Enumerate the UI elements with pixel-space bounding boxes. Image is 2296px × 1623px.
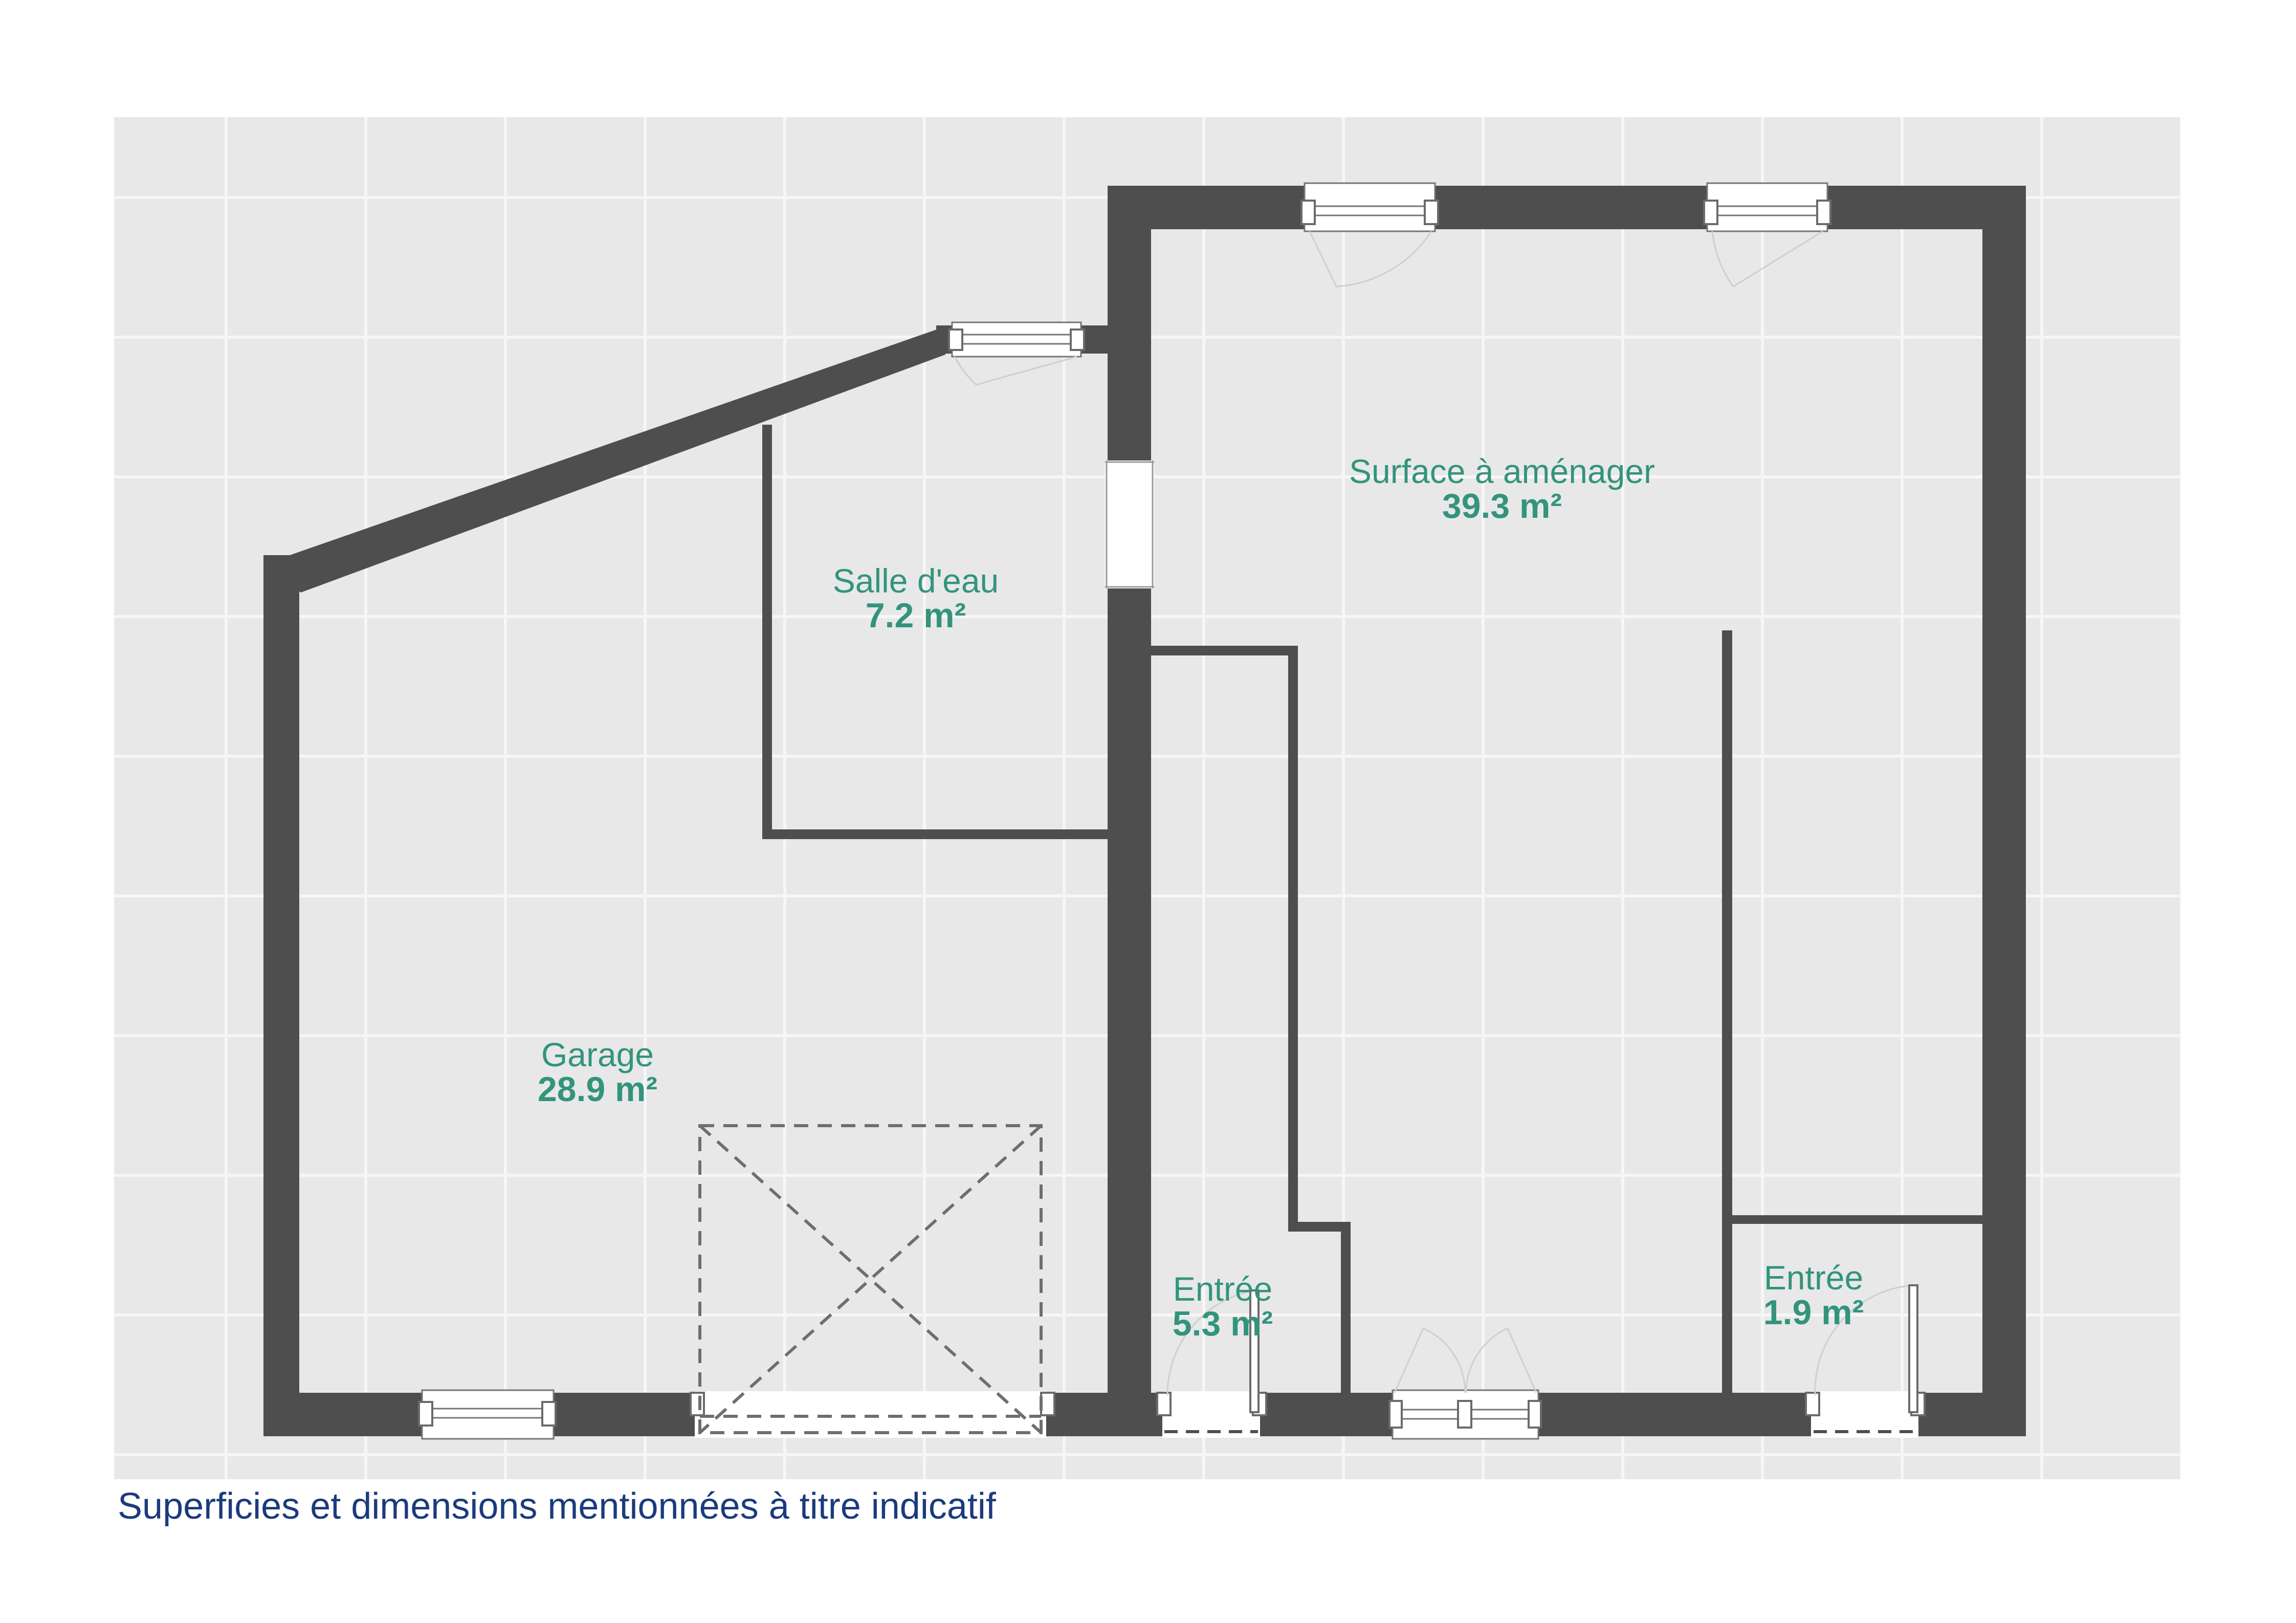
window-cap-icon — [1529, 1401, 1541, 1428]
room-label-garage-name: Garage — [541, 1036, 654, 1073]
window-cap-icon — [1071, 330, 1084, 350]
room-label-garage-area: 28.9 m² — [538, 1070, 657, 1109]
wall-entree1-top — [1151, 646, 1298, 655]
plan-caption: Superficies et dimensions mentionnées à … — [118, 1486, 997, 1527]
door-jamb-icon — [1041, 1393, 1054, 1415]
window-garage — [419, 1390, 556, 1439]
room-label-entree2-name: Entrée — [1764, 1259, 1863, 1297]
wall-right-left — [1108, 186, 1151, 1436]
wall-salle-eau-horizontal — [762, 829, 1108, 839]
window-mullion-icon — [1458, 1401, 1471, 1428]
room-label-entree2-area: 1.9 m² — [1763, 1293, 1864, 1332]
room-label-surface-area: 39.3 m² — [1442, 487, 1562, 525]
door-leaf-icon — [1909, 1285, 1917, 1412]
room-label-entree1-area: 5.3 m² — [1173, 1304, 1273, 1343]
passage-opening — [1105, 460, 1154, 588]
wall-entree1-lower — [1341, 1232, 1351, 1393]
wall-entree2-top — [1732, 1215, 1982, 1224]
window-cap-icon — [1389, 1401, 1402, 1428]
floor-plan-canvas: Surface à aménager 39.3 m² Salle d'eau 7… — [0, 0, 2296, 1623]
wall-right-top — [1108, 186, 2026, 229]
window-cap-icon — [949, 330, 962, 350]
wall-entree1-right — [1288, 655, 1298, 1222]
room-label-entree1-name: Entrée — [1173, 1270, 1272, 1308]
wall-left-left — [263, 555, 299, 1436]
door-jamb-icon — [1157, 1393, 1171, 1415]
wall-salle-eau-vertical — [762, 425, 772, 839]
room-label-surface-name: Surface à aménager — [1349, 452, 1655, 490]
window-cap-icon — [1301, 201, 1315, 224]
window-cap-icon — [1704, 201, 1717, 224]
room-label-salle-eau-area: 7.2 m² — [866, 596, 966, 635]
room-label-salle-eau-name: Salle d'eau — [833, 562, 999, 600]
wall-right-right — [1982, 186, 2026, 1436]
window-cap-icon — [1425, 201, 1438, 224]
wall-entree1-jog — [1288, 1222, 1351, 1232]
floor-plan-page: Surface à aménager 39.3 m² Salle d'eau 7… — [0, 0, 2296, 1623]
door-jamb-icon — [691, 1393, 704, 1415]
door-jamb-icon — [1806, 1393, 1819, 1415]
window-cap-icon — [1817, 201, 1830, 224]
wall-openings — [1105, 460, 1154, 588]
window-cap-icon — [542, 1402, 556, 1425]
window-cap-icon — [419, 1402, 432, 1425]
wall-divider — [1722, 630, 1732, 1393]
